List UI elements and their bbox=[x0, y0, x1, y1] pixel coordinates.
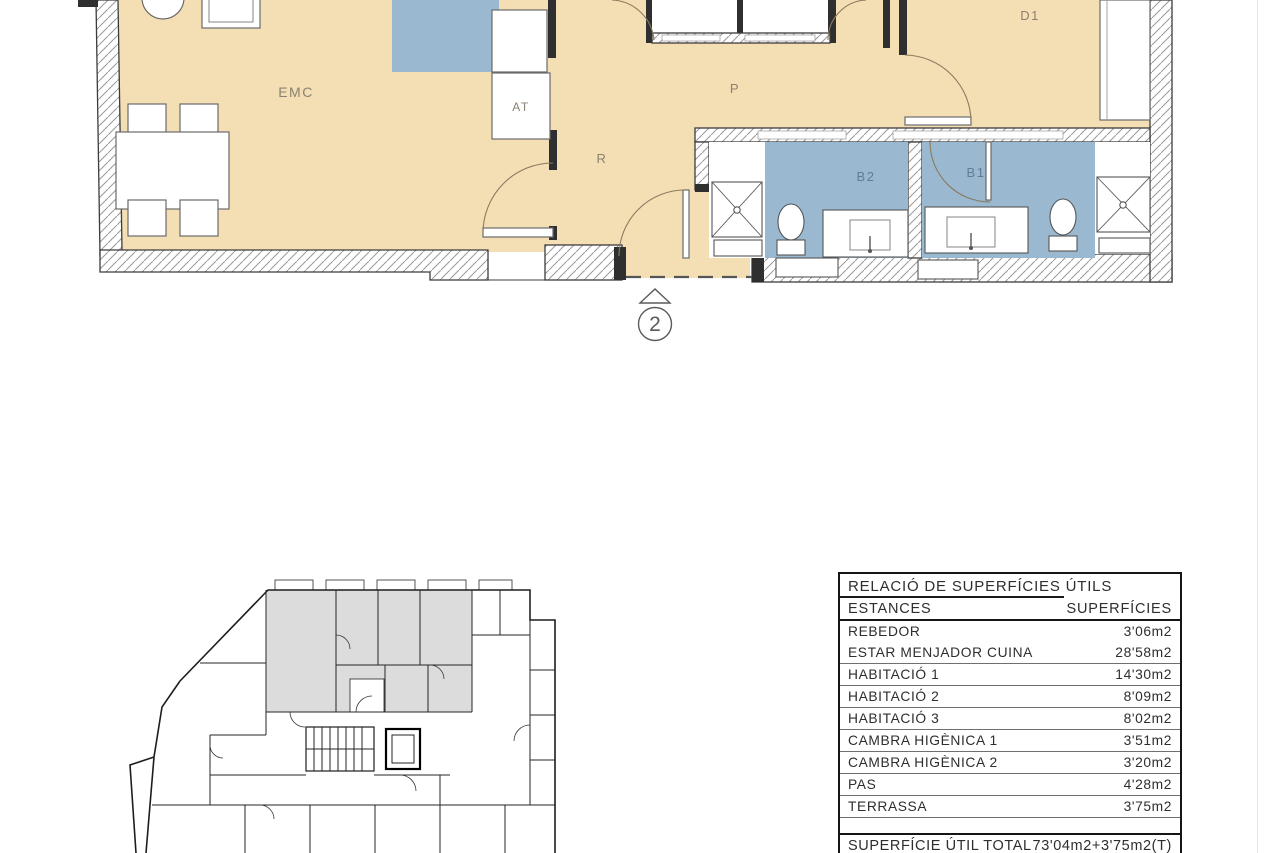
kitchen-counter-area bbox=[392, 0, 499, 72]
balconies bbox=[275, 580, 512, 590]
bench-b1 bbox=[1099, 238, 1150, 253]
room-label-d1: D1 bbox=[1020, 8, 1040, 23]
total-value: 73'04m2+3'75m2(T) bbox=[1033, 838, 1172, 853]
room-name: PAS bbox=[848, 776, 876, 793]
appliance-box bbox=[492, 10, 547, 72]
table-row: CAMBRA HIGÈNICA 2 3'20m2 bbox=[840, 752, 1180, 774]
shower-tray-b2 bbox=[712, 182, 762, 237]
room-area: 28'58m2 bbox=[1115, 644, 1172, 661]
room-area: 14'30m2 bbox=[1115, 666, 1172, 683]
room-area: 3'06m2 bbox=[1124, 623, 1172, 640]
room-name: HABITACIÓ 3 bbox=[848, 710, 939, 727]
shower-tray-b1 bbox=[1097, 177, 1150, 232]
bathroom-b1: B1 bbox=[922, 142, 1150, 258]
table-row: HABITACIÓ 3 8'02m2 bbox=[840, 708, 1180, 730]
room-label-emc: EMC bbox=[278, 84, 314, 100]
entrance-number: 2 bbox=[649, 313, 661, 336]
room-area: 3'75m2 bbox=[1124, 798, 1172, 815]
room-name: CAMBRA HIGÈNICA 1 bbox=[848, 732, 998, 749]
sink-counter-b1 bbox=[925, 207, 1028, 253]
table-row: PAS 4'28m2 bbox=[840, 774, 1180, 796]
table-row: REBEDOR 3'06m2 bbox=[840, 621, 1180, 642]
table-title: RELACIÓ DE SUPERFÍCIES ÚTILS bbox=[840, 574, 1180, 598]
sheet-fold-line bbox=[1257, 0, 1258, 853]
room-label-b1: B1 bbox=[967, 165, 986, 180]
dining-table bbox=[116, 132, 229, 209]
col-header-rooms: ESTANCES bbox=[848, 601, 931, 617]
entrance-marker: 2 bbox=[626, 277, 752, 341]
room-area: 8'02m2 bbox=[1124, 710, 1172, 727]
col-header-areas: SUPERFÍCIES bbox=[1067, 601, 1173, 617]
chair bbox=[180, 200, 218, 236]
armchair bbox=[202, 0, 260, 28]
room-name: HABITACIÓ 2 bbox=[848, 688, 939, 705]
room-name: REBEDOR bbox=[848, 623, 920, 640]
table-row: ESTAR MENJADOR CUINA 28'58m2 bbox=[840, 642, 1180, 664]
chair bbox=[128, 200, 166, 236]
kitchen-column: AT bbox=[492, 10, 550, 139]
room-name: HABITACIÓ 1 bbox=[848, 666, 939, 683]
table-row: HABITACIÓ 1 14'30m2 bbox=[840, 664, 1180, 686]
table-row: CAMBRA HIGÈNICA 1 3'51m2 bbox=[840, 730, 1180, 752]
room-label-at: AT bbox=[512, 100, 529, 114]
room-name: CAMBRA HIGÈNICA 2 bbox=[848, 754, 998, 771]
room-area: 8'09m2 bbox=[1124, 688, 1172, 705]
surface-table: RELACIÓ DE SUPERFÍCIES ÚTILS ESTANCES SU… bbox=[838, 572, 1182, 853]
bench-b2 bbox=[714, 240, 762, 256]
room-label-p: P bbox=[730, 81, 740, 96]
entrance-arrow-icon bbox=[640, 289, 670, 303]
room-area: 3'20m2 bbox=[1124, 754, 1172, 771]
table-total-row: SUPERFÍCIE ÚTIL TOTAL 73'04m2+3'75m2(T) bbox=[840, 833, 1180, 853]
drawing-sheet: B2 B1 bbox=[0, 0, 1280, 853]
toilet-b1 bbox=[1049, 199, 1077, 251]
d1-wardrobe bbox=[1100, 0, 1150, 120]
room-name: TERRASSA bbox=[848, 798, 927, 815]
room-label-r: R bbox=[597, 151, 608, 166]
sink-counter-b2 bbox=[823, 210, 908, 257]
main-floor-plan: B2 B1 bbox=[0, 0, 1280, 400]
stair-core bbox=[306, 727, 420, 771]
table-spacer bbox=[840, 818, 1180, 833]
table-row: TERRASSA 3'75m2 bbox=[840, 796, 1180, 818]
highlighted-unit bbox=[266, 590, 472, 712]
room-label-b2: B2 bbox=[857, 169, 876, 184]
table-row: HABITACIÓ 2 8'09m2 bbox=[840, 686, 1180, 708]
room-name: ESTAR MENJADOR CUINA bbox=[848, 644, 1033, 661]
cabinet bbox=[918, 260, 978, 279]
key-plan bbox=[110, 575, 570, 853]
table-header: ESTANCES SUPERFÍCIES bbox=[840, 598, 1180, 621]
toilet-b2 bbox=[777, 204, 805, 255]
room-area: 3'51m2 bbox=[1124, 732, 1172, 749]
cabinet bbox=[776, 258, 838, 277]
upper-rooms-cut bbox=[612, 0, 866, 43]
room-area: 4'28m2 bbox=[1124, 776, 1172, 793]
total-label: SUPERFÍCIE ÚTIL TOTAL bbox=[848, 838, 1032, 853]
